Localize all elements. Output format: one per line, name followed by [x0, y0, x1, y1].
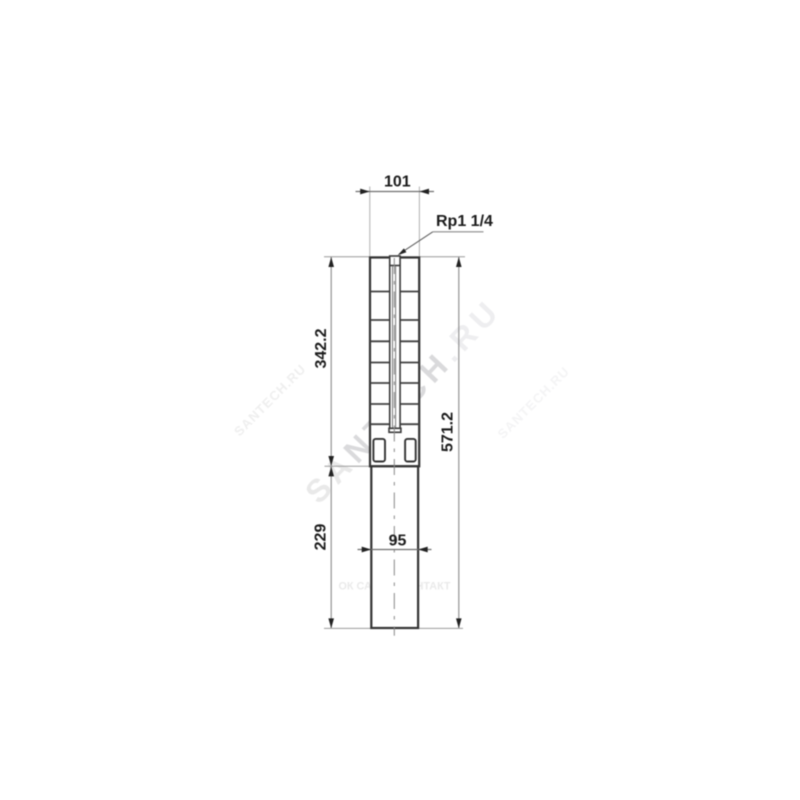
svg-text:342.2: 342.2 — [313, 328, 330, 368]
svg-text:571.2: 571.2 — [440, 412, 457, 452]
svg-text:101: 101 — [384, 174, 411, 191]
svg-text:Rp1 1/4: Rp1 1/4 — [436, 213, 493, 230]
svg-text:229: 229 — [313, 524, 330, 551]
svg-text:95: 95 — [389, 533, 407, 550]
